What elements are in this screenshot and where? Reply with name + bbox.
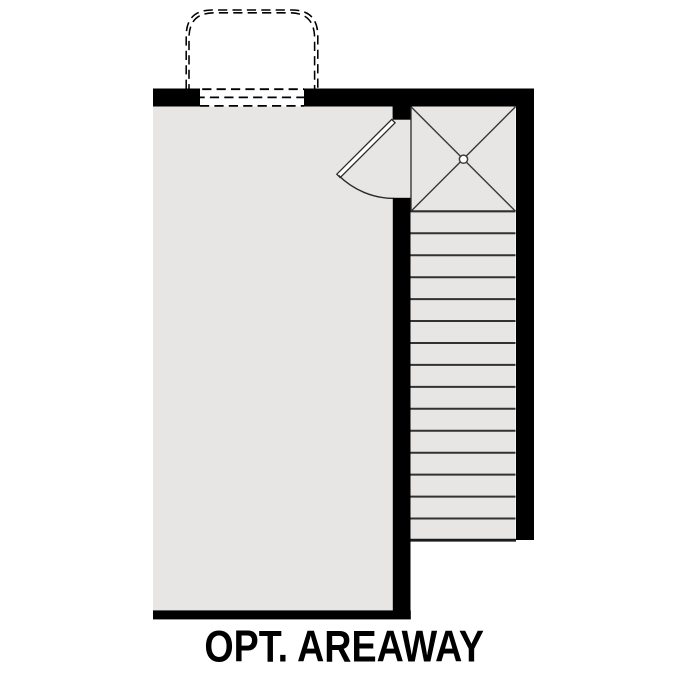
svg-text:OPT. AREAWAY: OPT. AREAWAY xyxy=(204,622,484,672)
